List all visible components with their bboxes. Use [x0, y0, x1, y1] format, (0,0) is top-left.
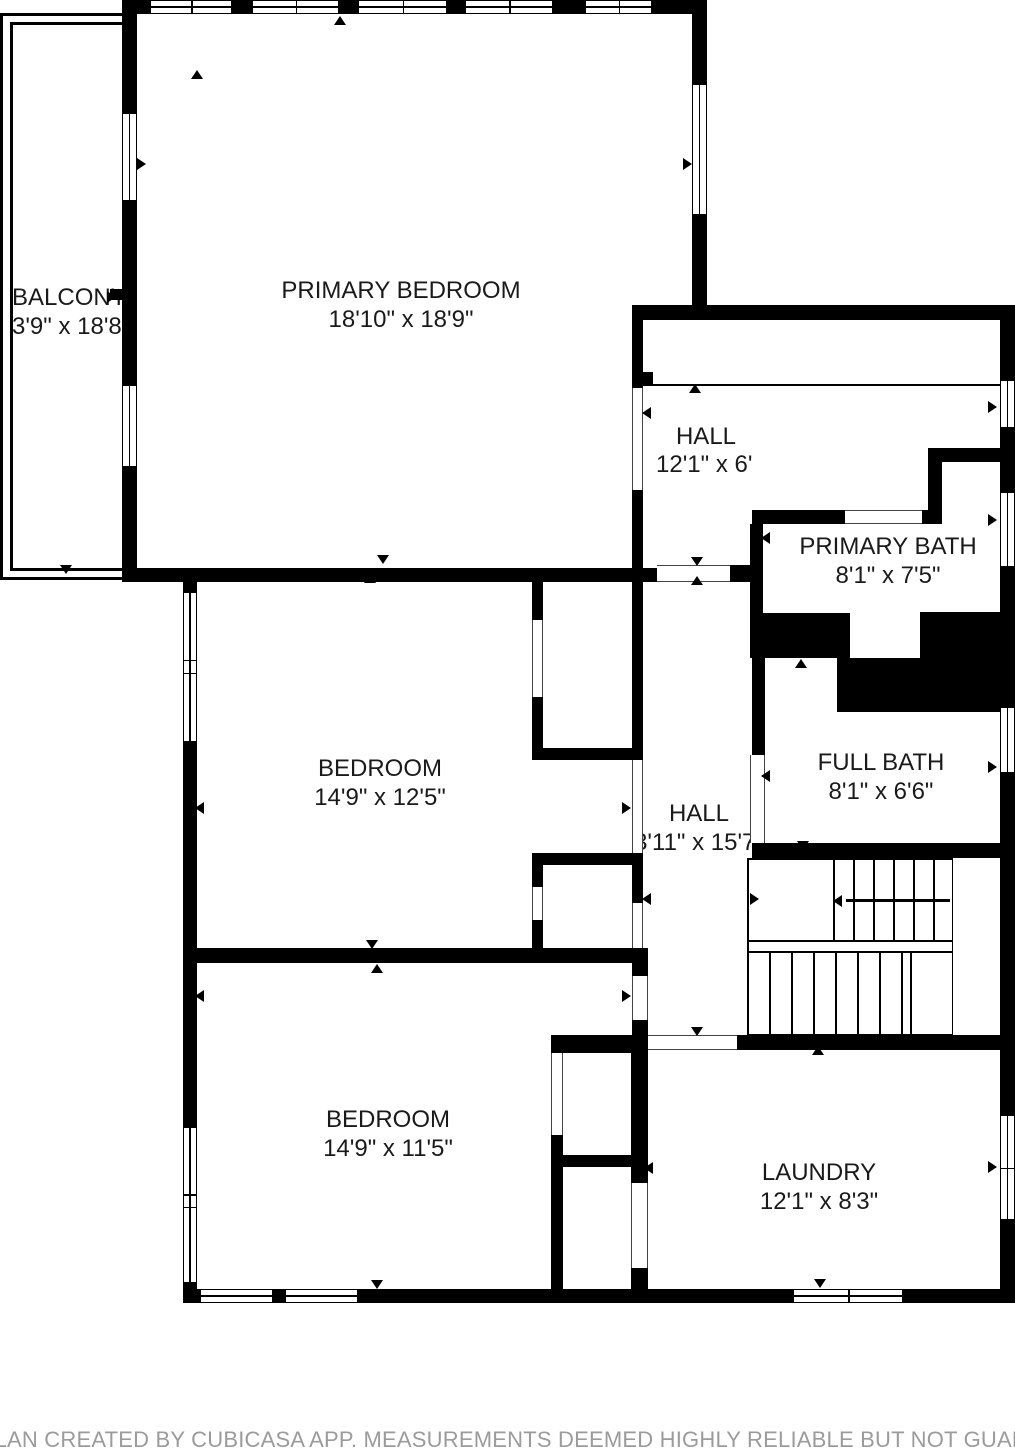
direction-arrow-marker: [644, 1162, 653, 1174]
wall: [643, 372, 653, 385]
plan-line: [0, 577, 122, 580]
window-divider: [191, 1, 193, 13]
direction-arrow-marker: [691, 576, 703, 585]
direction-arrow-marker: [137, 158, 146, 170]
room-dimensions: 3'11" x 15'7": [634, 828, 764, 857]
direction-arrow-marker: [812, 1046, 824, 1055]
window-divider: [403, 1, 405, 13]
window-glyph: [122, 385, 137, 467]
direction-arrow-marker: [833, 895, 842, 907]
window-divider: [296, 1, 298, 13]
wall: [737, 1035, 1015, 1050]
room-dimensions: 8'1" x 7'5": [799, 561, 976, 590]
window-divider: [509, 1, 511, 13]
room-name: PRIMARY BATH: [799, 532, 976, 561]
wall: [632, 567, 643, 760]
window-divider: [1001, 1168, 1014, 1170]
window-glyph: [200, 1289, 273, 1303]
plan-line: [747, 858, 749, 1035]
wall: [532, 697, 543, 752]
door-opening: [648, 1035, 737, 1050]
direction-arrow-marker: [364, 574, 376, 583]
room-dimensions: 12'1" x 6': [656, 450, 752, 479]
wall: [532, 579, 543, 620]
wall: [750, 613, 850, 658]
wall: [122, 568, 657, 582]
direction-arrow-marker: [761, 770, 770, 782]
room-name: BEDROOM: [323, 1105, 453, 1134]
window-center-line: [189, 593, 191, 741]
disclaimer-text: FLOOR PLAN CREATED BY CUBICASA APP. MEAS…: [0, 1427, 1015, 1453]
room-name: PRIMARY BEDROOM: [281, 276, 520, 305]
window-glyph: [183, 592, 197, 742]
window-center-line: [189, 1128, 191, 1282]
wall: [631, 1268, 648, 1303]
direction-arrow-marker: [988, 761, 997, 773]
direction-arrow-marker: [622, 802, 631, 814]
wall: [631, 1035, 648, 1183]
wall: [532, 865, 543, 887]
direction-arrow-marker: [689, 384, 701, 393]
direction-arrow-marker: [691, 1027, 703, 1036]
plan-line: [747, 858, 953, 860]
wall: [752, 658, 765, 755]
direction-arrow-marker: [960, 650, 972, 659]
plan-line: [10, 22, 122, 25]
plan-line: [813, 953, 815, 1034]
wall: [752, 510, 845, 524]
plan-line: [901, 953, 903, 1034]
direction-arrow-marker: [195, 990, 204, 1002]
door-opening: [532, 620, 543, 697]
plan-line: [747, 940, 953, 942]
room-name: FULL BATH: [818, 748, 945, 777]
window-divider: [184, 1194, 196, 1196]
room-dimensions: 3'9" x 18'8": [12, 312, 130, 341]
direction-arrow-marker: [795, 659, 807, 668]
direction-arrow-marker: [988, 401, 997, 413]
wall: [837, 658, 1000, 712]
direction-arrow-marker: [642, 407, 651, 419]
window-glyph: [692, 84, 707, 215]
window-center-line: [129, 114, 131, 200]
plan-line: [0, 13, 122, 16]
direction-arrow-marker: [960, 449, 972, 458]
door-opening: [845, 510, 922, 524]
plan-line: [791, 953, 793, 1034]
window-center-line: [699, 85, 701, 214]
window-divider: [619, 1, 621, 13]
plan-line: [952, 858, 954, 1035]
room-dimensions: 14'9" x 12'5": [314, 783, 446, 812]
wall: [922, 510, 942, 524]
window-glyph: [1000, 707, 1015, 773]
window-divider: [184, 660, 196, 662]
room-dimensions-hall-upper: 12'1" x 6': [656, 450, 752, 479]
window-glyph: [285, 1289, 358, 1303]
room-label-primary-bedroom: PRIMARY BEDROOM 18'10" x 18'9": [281, 276, 520, 334]
wall: [632, 318, 643, 388]
window-glyph: [465, 0, 553, 14]
room-label-hall-central: HALL 3'11" x 15'7": [634, 799, 764, 857]
window-center-line: [286, 1295, 357, 1297]
window-glyph: [252, 0, 339, 14]
wall: [532, 748, 643, 760]
direction-arrow-marker: [195, 802, 204, 814]
door-opening: [632, 903, 643, 948]
room-dimensions: 12'1" x 8'3": [760, 1187, 878, 1216]
direction-arrow-marker: [642, 893, 651, 905]
direction-arrow-marker: [107, 291, 116, 303]
plan-line: [846, 899, 950, 902]
window-center-line: [129, 386, 131, 466]
room-label-hall-upper: HALL: [676, 422, 736, 451]
room-dimensions: 14'9" x 11'5": [323, 1134, 453, 1163]
window-divider: [184, 1207, 196, 1209]
window-center-line: [1007, 493, 1009, 566]
room-dimensions: 18'10" x 18'9": [281, 305, 520, 334]
direction-arrow-marker: [988, 1161, 997, 1173]
wall: [752, 843, 1015, 858]
door-opening: [551, 1053, 563, 1135]
door-opening: [632, 388, 643, 490]
room-dimensions: 8'1" x 6'6": [818, 777, 945, 806]
direction-arrow-marker: [60, 565, 72, 574]
door-opening: [632, 976, 648, 1020]
direction-arrow-marker: [366, 940, 378, 949]
door-opening: [532, 887, 543, 920]
window-glyph: [585, 0, 652, 14]
room-name: HALL: [634, 799, 764, 828]
plan-line: [857, 953, 859, 1034]
plan-line: [10, 22, 13, 571]
plan-line: [769, 953, 771, 1034]
wall: [730, 565, 752, 582]
direction-arrow-marker: [191, 70, 203, 79]
window-glyph: [1000, 1115, 1015, 1220]
room-label-bedroom-bottom: BEDROOM 14'9" x 11'5": [323, 1105, 453, 1163]
wall: [532, 920, 543, 948]
direction-arrow-marker: [761, 532, 770, 544]
window-center-line: [1007, 708, 1009, 772]
plan-line: [747, 951, 953, 953]
room-label-laundry: LAUNDRY 12'1" x 8'3": [760, 1158, 878, 1216]
direction-arrow-marker: [371, 1280, 383, 1289]
wall: [632, 305, 1015, 320]
window-glyph: [1000, 380, 1015, 428]
window-glyph: [122, 113, 137, 201]
direction-arrow-marker: [797, 841, 809, 850]
window-glyph: [358, 0, 447, 14]
wall: [532, 853, 632, 865]
window-glyph: [183, 1127, 197, 1283]
window-divider: [184, 673, 196, 675]
plan-line: [835, 953, 837, 1034]
door-opening: [632, 760, 643, 853]
plan-line: [910, 953, 912, 1034]
door-opening: [750, 755, 765, 843]
room-label-full-bath: FULL BATH 8'1" x 6'6": [818, 748, 945, 806]
room-label-bedroom-middle: BEDROOM 14'9" x 12'5": [314, 754, 446, 812]
window-center-line: [1007, 381, 1009, 427]
direction-arrow-marker: [377, 555, 389, 564]
window-center-line: [201, 1295, 272, 1297]
room-label-primary-bath: PRIMARY BATH 8'1" x 7'5": [799, 532, 976, 590]
window-glyph: [793, 1289, 903, 1303]
direction-arrow-marker: [814, 1279, 826, 1288]
window-glyph: [1000, 492, 1015, 567]
direction-arrow-marker: [334, 16, 346, 25]
window-glyph: [150, 0, 232, 14]
floor-plan: BALCONY 3'9" x 18'8" PRIMARY BEDROOM 18'…: [0, 0, 1015, 1453]
window-divider: [848, 1290, 850, 1302]
room-name: LAUNDRY: [760, 1158, 878, 1187]
door-opening: [631, 1183, 648, 1268]
plan-line: [879, 953, 881, 1034]
direction-arrow-marker: [691, 557, 703, 566]
plan-line: [0, 13, 3, 580]
wall: [183, 948, 648, 963]
room-name: HALL: [676, 422, 736, 451]
direction-arrow-marker: [683, 158, 692, 170]
room-name: BEDROOM: [314, 754, 446, 783]
wall: [632, 963, 648, 976]
direction-arrow-marker: [988, 514, 997, 526]
direction-arrow-marker: [371, 964, 383, 973]
direction-arrow-marker: [622, 990, 631, 1002]
wall: [632, 1020, 648, 1035]
direction-arrow-marker: [750, 893, 759, 905]
